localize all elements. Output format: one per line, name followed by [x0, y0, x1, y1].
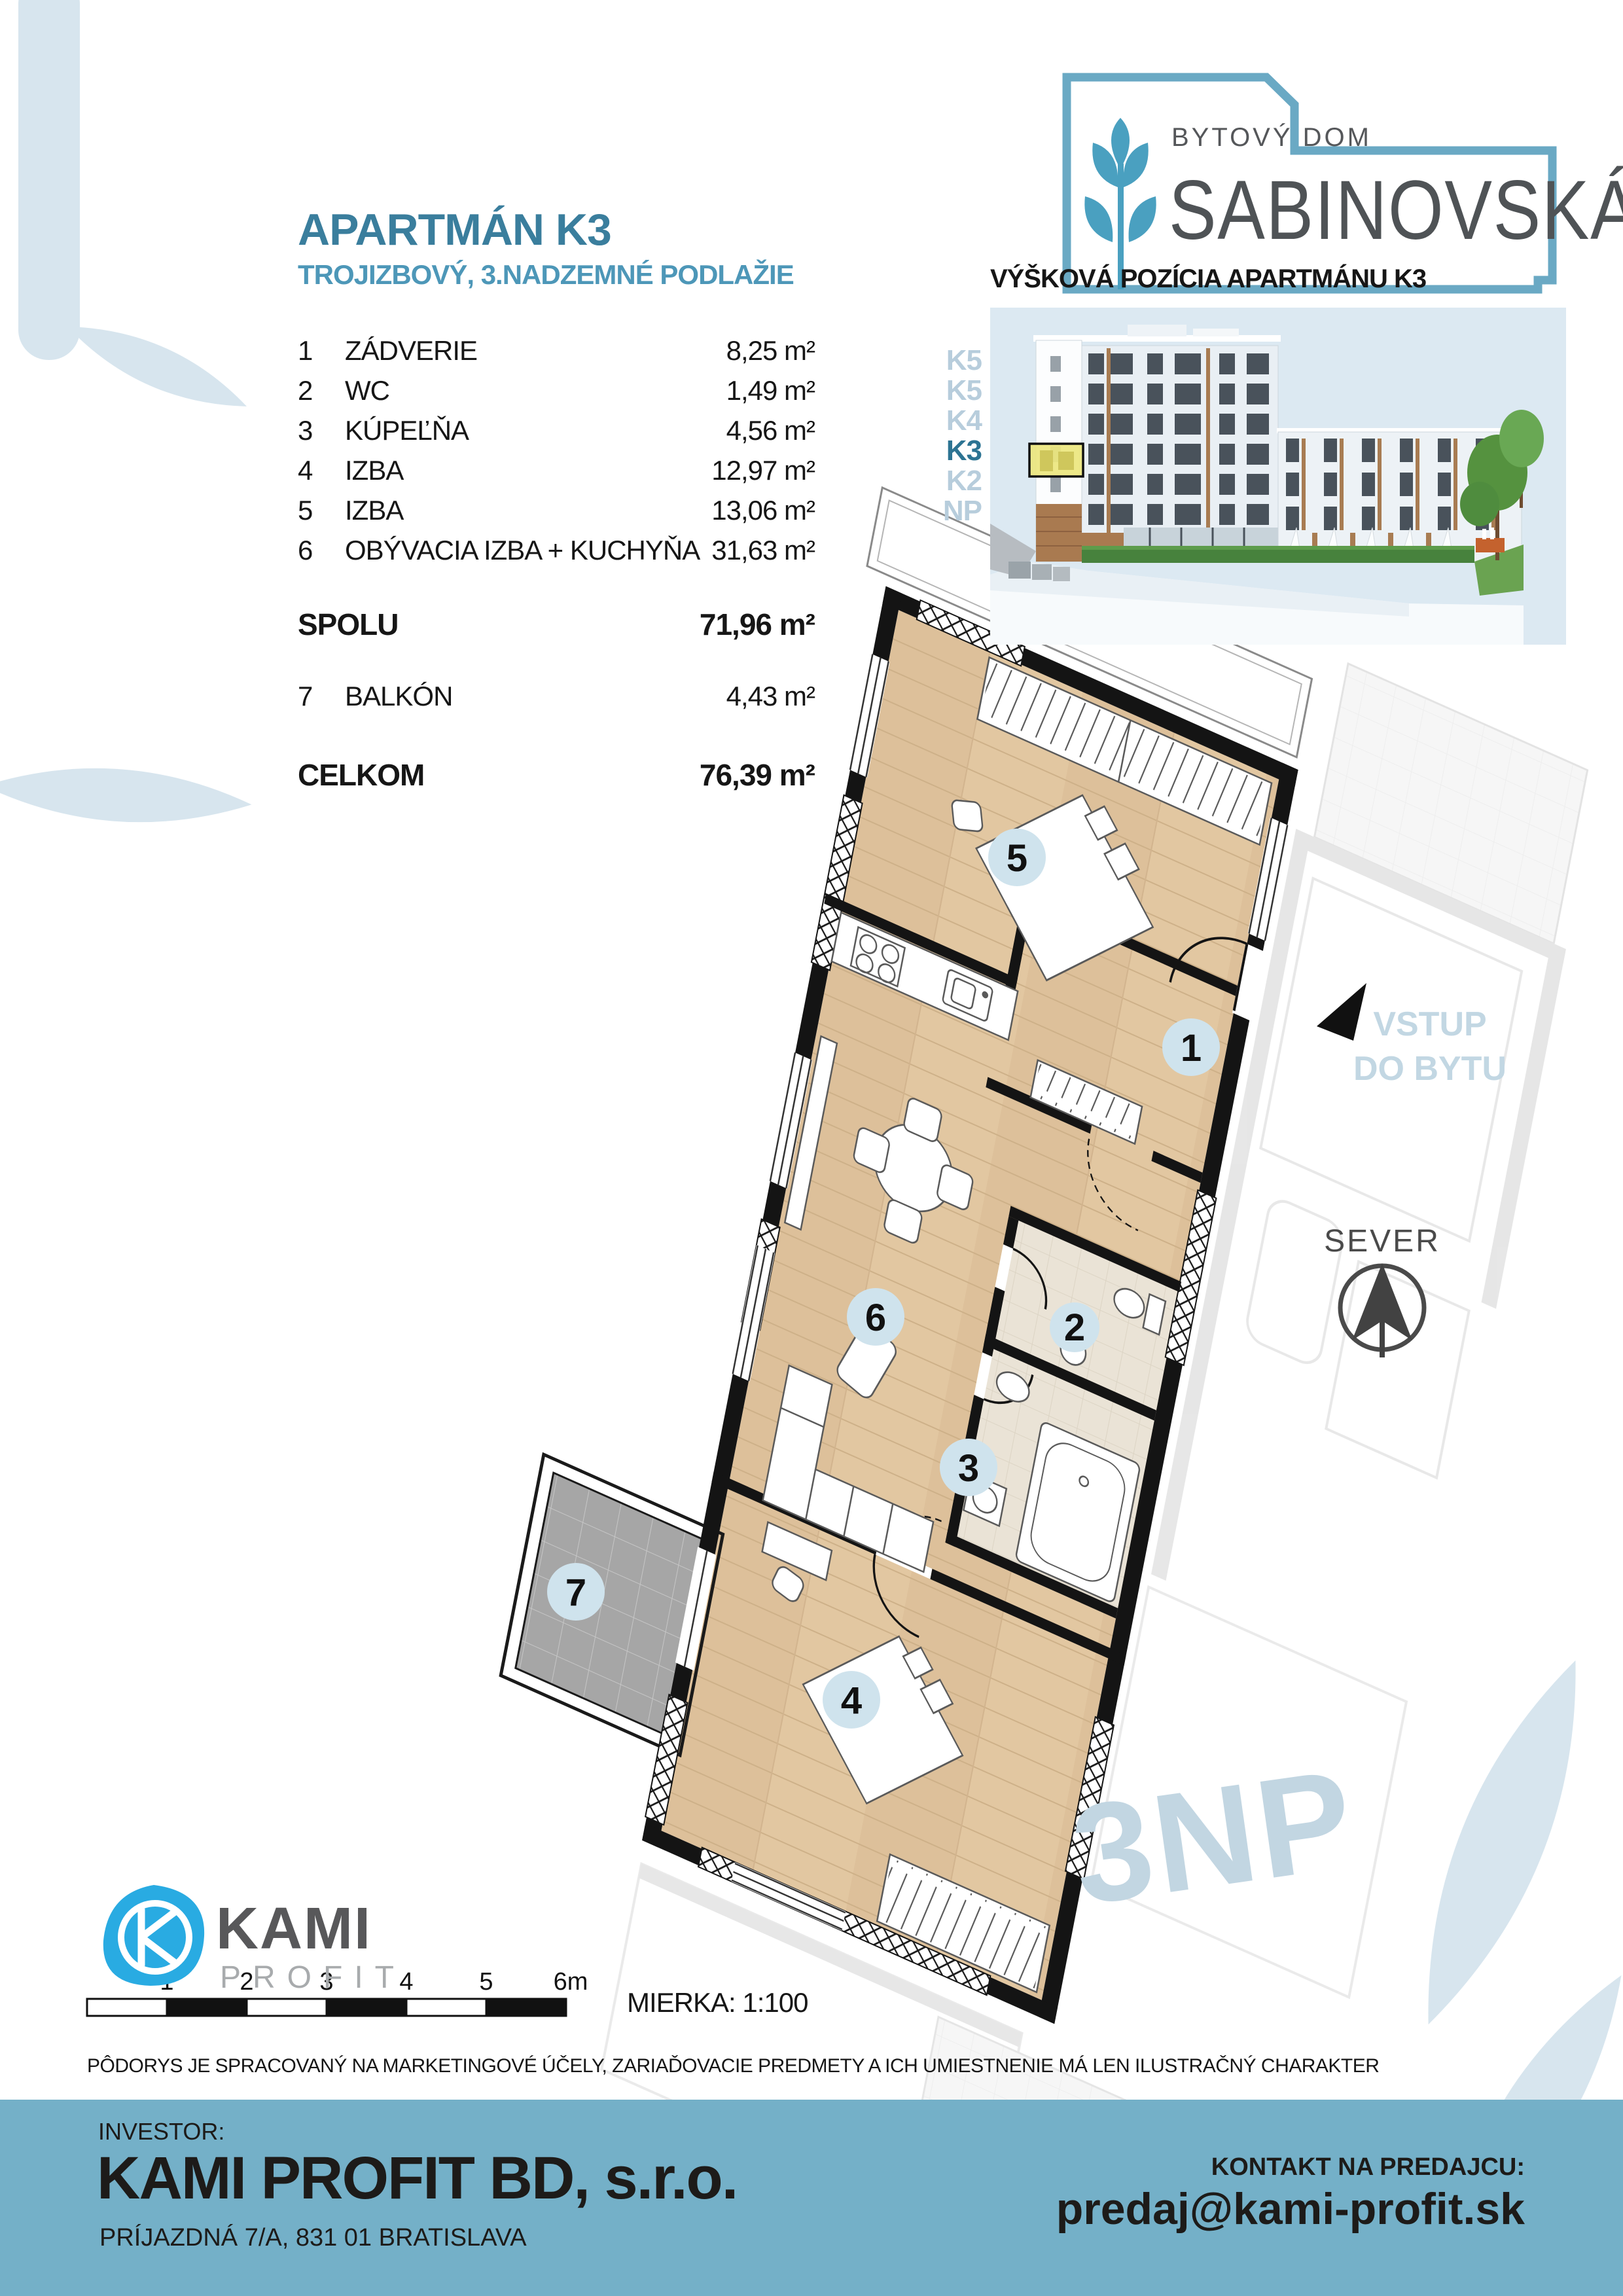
scale-label: MIERKA: 1:100 [627, 1987, 808, 2018]
floor-label-k3: K3 [895, 436, 982, 466]
elevation-heading: VÝŠKOVÁ POZÍCIA APARTMÁNU K3 [990, 264, 1426, 294]
grand-label: CELKOM [298, 758, 424, 792]
total-area: 71,96 m² [700, 607, 815, 642]
table-row: 1ZÁDVERIE8,25 m² [298, 335, 815, 367]
investor-address: PRÍJAZDNÁ 7/A, 831 01 BRATISLAVA [99, 2224, 527, 2252]
kami-logo-word: KAMI [216, 1895, 372, 1963]
table-row: 3KÚPEĽŇA4,56 m² [298, 415, 815, 446]
total-label: SPOLU [298, 607, 398, 641]
investor-name: KAMI PROFIT BD, s.r.o. [97, 2144, 737, 2213]
entry-label-line2: DO BYTU [1353, 1050, 1507, 1088]
row-name: OBÝVACIA IZBA + KUCHYŇA [345, 535, 700, 565]
contact-label: KONTAKT NA PREDAJCU: [1211, 2153, 1525, 2181]
chair-room5 [952, 800, 983, 832]
floor-label-np: NP [895, 496, 982, 526]
table-row: 2WC1,49 m² [298, 375, 815, 406]
svg-text:7: 7 [565, 1571, 586, 1614]
brand-top-label: BYTOVÝ DOM [1171, 123, 1372, 152]
scale-tick-6: 6m [554, 1968, 588, 1996]
page-subtitle: TROJIZBOVÝ, 3.NADZEMNÉ PODLAŽIE [298, 259, 794, 291]
svg-text:5: 5 [1007, 837, 1027, 880]
row-name: IZBA [345, 495, 403, 526]
row-num: 4 [298, 455, 345, 486]
row-name: ZÁDVERIE [345, 335, 477, 366]
investor-label: INVESTOR: [98, 2118, 224, 2145]
room-marker-6: 6 [847, 1288, 904, 1346]
kami-logo-profit: PROFIT [220, 1960, 406, 1996]
row-area: 8,25 m² [726, 335, 815, 367]
grand-total-row: CELKOM76,39 m² [298, 757, 815, 793]
balcony-row: 7BALKÓN4,43 m² [298, 681, 815, 712]
tower-wood-base [1036, 504, 1082, 562]
row-area: 4,43 m² [726, 681, 815, 712]
row-num: 2 [298, 375, 345, 406]
room-marker-5: 5 [988, 829, 1046, 886]
floor-label-k4: K4 [895, 406, 982, 436]
plant-icon [1084, 118, 1156, 289]
room-marker-3: 3 [940, 1439, 997, 1496]
contact-email: predaj@kami-profit.sk [1056, 2183, 1525, 2234]
brand-name: SABINOVSKÁ [1169, 162, 1623, 259]
room-marker-1: 1 [1162, 1018, 1220, 1076]
table-row: 5IZBA13,06 m² [298, 495, 815, 526]
row-area: 12,97 m² [711, 455, 815, 486]
total-row: SPOLU71,96 m² [298, 607, 815, 642]
k3-highlight [1029, 444, 1083, 476]
svg-text:1: 1 [1181, 1027, 1202, 1069]
floor-watermark: 3NP [1063, 1739, 1364, 1935]
row-num: 3 [298, 415, 345, 446]
row-area: 13,06 m² [711, 495, 815, 526]
table-row: 6OBÝVACIA IZBA + KUCHYŇA31,63 m² [298, 535, 815, 566]
svg-text:3: 3 [958, 1447, 979, 1490]
svg-text:6: 6 [865, 1297, 886, 1339]
room-marker-4: 4 [823, 1671, 880, 1729]
room-marker-7: 7 [547, 1563, 605, 1621]
row-area: 4,56 m² [726, 415, 815, 446]
row-num: 6 [298, 535, 345, 566]
north-label: SEVER [1324, 1224, 1440, 1259]
row-name: IZBA [345, 455, 403, 486]
row-name: KÚPEĽŇA [345, 415, 469, 446]
svg-text:4: 4 [841, 1679, 862, 1722]
row-name: BALKÓN [345, 681, 452, 711]
entry-label-line1: VSTUP [1373, 1005, 1486, 1043]
grand-area: 76,39 m² [700, 757, 815, 793]
room-marker-2: 2 [1050, 1302, 1099, 1352]
table-row: 4IZBA12,97 m² [298, 455, 815, 486]
row-area: 1,49 m² [726, 375, 815, 406]
row-name: WC [345, 375, 389, 406]
row-num: 7 [298, 681, 345, 712]
disclaimer-text: PÔDORYS JE SPRACOVANÝ NA MARKETINGOVÉ ÚČ… [87, 2055, 1379, 2077]
elevation-panel [990, 308, 1566, 645]
row-num: 5 [298, 495, 345, 526]
row-num: 1 [298, 335, 345, 367]
row-area: 31,63 m² [711, 535, 815, 566]
hedge [1082, 548, 1474, 563]
svg-text:2: 2 [1064, 1306, 1085, 1349]
floor-labels: K5 K5 K4 K3 K2 NP [895, 346, 982, 526]
page-title: APARTMÁN K3 [298, 204, 611, 255]
page: { "header": { "title": "APARTMÁN K3", "s… [0, 0, 1623, 2296]
floor-label-k2: K2 [895, 466, 982, 496]
floor-label-k5b: K5 [895, 376, 982, 406]
floor-label-k5a: K5 [895, 346, 982, 376]
entry-arrow-icon [1317, 983, 1366, 1041]
north-compass-icon: SEVER [1324, 1224, 1440, 1357]
